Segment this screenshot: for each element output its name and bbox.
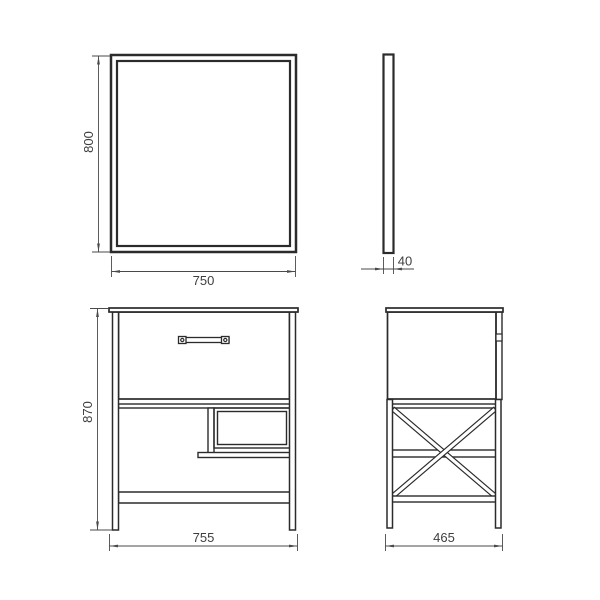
cabinet-width-label: 755 (193, 530, 215, 545)
arrowhead-up (97, 56, 100, 65)
mirror-outer-frame (111, 55, 296, 252)
arrowhead-up (96, 309, 99, 318)
dimension-mirror-width: 750 (112, 256, 296, 288)
arrowhead-right (287, 270, 296, 273)
right-leg (290, 312, 296, 530)
arrowhead-right (375, 268, 384, 271)
frame-bottom-rail (389, 496, 500, 502)
arrowhead-down (96, 522, 99, 531)
left-leg (113, 312, 119, 530)
mirror-depth-label: 40 (398, 254, 412, 269)
countertop (386, 308, 503, 312)
cabinet-depth-label: 465 (433, 530, 455, 545)
arrowhead-left (112, 270, 121, 273)
handle-end-cap (222, 337, 230, 344)
frame-top-rail (392, 404, 496, 408)
mirror-front-view: 800 750 (81, 55, 296, 288)
cabinet-height-label: 870 (80, 401, 95, 423)
dimension-cabinet-depth: 465 (386, 530, 503, 551)
countertop (109, 308, 298, 312)
cabinet-side-view: 465 (386, 308, 504, 551)
drawer-front-panel (119, 312, 290, 399)
shelf-lower-rail (198, 453, 290, 458)
right-leg (496, 400, 502, 529)
shelf-divider-post (208, 408, 214, 453)
drawer-handle (179, 337, 230, 344)
cabinet-body-side (388, 312, 497, 399)
mirror-width-label: 750 (193, 273, 215, 288)
drawing-sheet: 800 750 40 (0, 0, 600, 600)
technical-drawing-svg: 800 750 40 (0, 0, 600, 600)
mirror-side-profile (384, 55, 394, 254)
mirror-inner-frame (117, 61, 290, 246)
wall-bracket (496, 334, 502, 341)
arrowhead-left (110, 545, 119, 548)
dimension-cabinet-width: 755 (110, 530, 298, 551)
cabinet-front-view: 870 755 (80, 308, 298, 551)
mirror-height-label: 800 (81, 131, 96, 153)
shelf-frame-inner (218, 412, 287, 445)
arrowhead-right (494, 545, 503, 548)
back-panel (496, 312, 502, 400)
dimension-cabinet-height: 870 (80, 309, 112, 531)
frame-bottom-rail (119, 492, 291, 503)
handle-end-cap (179, 337, 187, 344)
arrowhead-down (97, 244, 100, 253)
dimension-mirror-height: 800 (81, 56, 110, 252)
shelf-frame-outer (214, 408, 290, 448)
mirror-side-view: 40 (361, 55, 414, 275)
left-leg (387, 400, 393, 529)
arrowhead-left (386, 545, 395, 548)
dimension-mirror-depth: 40 (361, 254, 414, 275)
arrowhead-right (289, 545, 298, 548)
